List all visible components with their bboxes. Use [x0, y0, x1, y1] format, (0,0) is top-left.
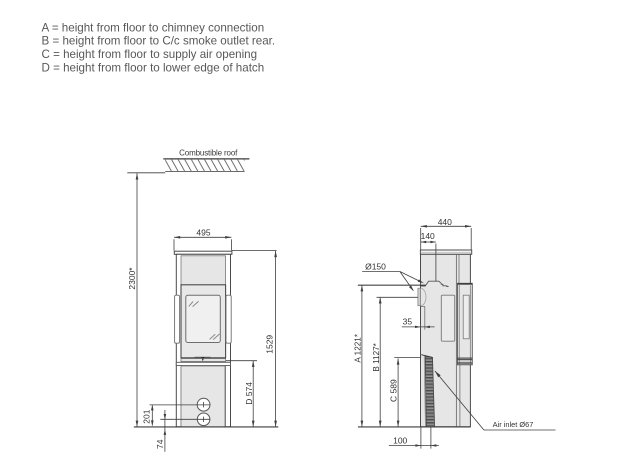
svg-text:D = height from floor to lower: D = height from floor to lower edge of h…: [42, 62, 265, 75]
svg-text:1529: 1529: [265, 335, 275, 354]
svg-text:140: 140: [421, 231, 435, 241]
svg-text:C 589: C 589: [388, 379, 398, 402]
svg-text:C = height from floor to suppl: C = height from floor to supply air open…: [42, 48, 258, 61]
svg-text:35: 35: [403, 317, 413, 327]
svg-text:100: 100: [393, 436, 407, 446]
svg-text:B = height from floor to C/c s: B = height from floor to C/c smoke outle…: [42, 35, 276, 48]
svg-text:Combustible roof: Combustible roof: [179, 149, 238, 158]
svg-text:A = height from floor to chimn: A = height from floor to chimney connect…: [42, 21, 265, 34]
svg-text:Air inlet Ø67: Air inlet Ø67: [493, 420, 534, 429]
svg-text:B 1127*: B 1127*: [372, 342, 381, 371]
svg-text:Ø150: Ø150: [365, 261, 386, 271]
svg-text:440: 440: [438, 217, 452, 227]
svg-text:A 1221*: A 1221*: [353, 333, 362, 362]
svg-text:201: 201: [142, 409, 152, 423]
svg-text:D 574: D 574: [244, 382, 254, 405]
svg-text:495: 495: [196, 228, 210, 238]
svg-text:2300*: 2300*: [127, 267, 137, 290]
svg-text:74: 74: [155, 439, 165, 449]
